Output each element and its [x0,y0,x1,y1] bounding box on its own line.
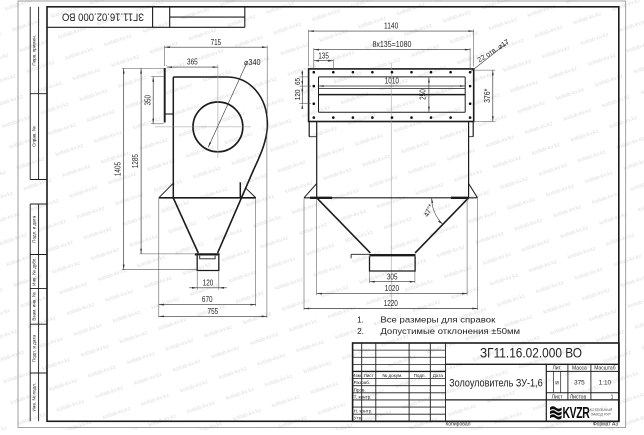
svg-text:Дата: Дата [433,373,444,378]
svg-text:1285: 1285 [131,154,140,169]
svg-text:ЗГ11.16.02.000 ВО: ЗГ11.16.02.000 ВО [62,10,144,22]
svg-text:365: 365 [187,58,198,67]
svg-text:Справ. №: Справ. № [31,126,36,147]
svg-text:Формат А3: Формат А3 [593,421,618,427]
svg-text:1.: 1. [357,316,364,325]
svg-text:Лист: Лист [364,373,375,378]
svg-text:135: 135 [318,51,329,60]
svg-text:Инв. № подл.: Инв. № подл. [31,383,36,412]
svg-text:65: 65 [293,78,302,85]
svg-text:670: 670 [202,295,213,304]
svg-text:375: 375 [574,379,585,386]
svg-text:1010: 1010 [385,76,400,85]
svg-text:Перв. примен.: Перв. примен. [31,35,36,66]
svg-text:Т. контр.: Т. контр. [354,394,372,399]
svg-text:Подп.: Подп. [414,373,426,378]
svg-text:⌀340: ⌀340 [244,58,261,67]
svg-text:120: 120 [293,90,302,101]
svg-text:Лист: Лист [552,394,564,400]
svg-text:Пров.: Пров. [354,387,366,392]
svg-text:Масштаб: Масштаб [594,366,616,372]
svg-text:376*: 376* [483,89,492,103]
svg-text:1: 1 [611,394,614,400]
svg-text:Подп. и дата: Подп. и дата [31,335,36,363]
svg-text:1:10: 1:10 [599,379,612,386]
svg-text:Масса: Масса [572,366,587,372]
svg-text:Инв. № дубл.: Инв. № дубл. [31,257,36,285]
svg-text:715: 715 [211,38,222,47]
svg-text:КОТЕЛЬНЫЙ: КОТЕЛЬНЫЙ [589,408,612,412]
svg-text:Допустимые отклонения ±50мм: Допустимые отклонения ±50мм [380,327,520,336]
svg-text:Утв.: Утв. [354,416,363,421]
svg-text:1020: 1020 [385,284,400,293]
svg-text:250: 250 [419,89,428,100]
svg-text:2.: 2. [357,327,364,336]
svg-text:ЗАВОД РУР: ЗАВОД РУР [591,413,612,417]
svg-text:1220: 1220 [384,299,399,308]
svg-text:и: и [555,379,559,386]
svg-text:Листов: Листов [570,394,587,400]
svg-text:8х135=1080: 8х135=1080 [372,40,411,49]
svg-text:Копировал: Копировал [445,421,470,427]
svg-text:1140: 1140 [384,22,399,31]
svg-text:Лит.: Лит. [552,366,561,372]
svg-text:Н. контр.: Н. контр. [354,409,373,414]
svg-text:350: 350 [144,94,153,105]
svg-text:Все размеры для справок: Все размеры для справок [380,316,495,325]
svg-text:№ докум.: № докум. [382,373,402,378]
svg-text:1405: 1405 [114,162,123,177]
svg-text:755: 755 [208,307,219,316]
svg-text:Золоуловитель ЗУ-1,6: Золоуловитель ЗУ-1,6 [449,377,543,389]
svg-text:KVZR: KVZR [563,405,590,422]
svg-text:Изм.: Изм. [352,373,362,378]
svg-text:Подп. и дата: Подп. и дата [31,215,36,243]
svg-text:120: 120 [203,278,214,287]
svg-text:ЗГ11.16.02.000 ВО: ЗГ11.16.02.000 ВО [480,345,582,360]
svg-text:305: 305 [387,272,398,281]
svg-text:Разраб.: Разраб. [354,380,371,385]
svg-text:Взам. инв. №: Взам. инв. № [31,292,36,321]
